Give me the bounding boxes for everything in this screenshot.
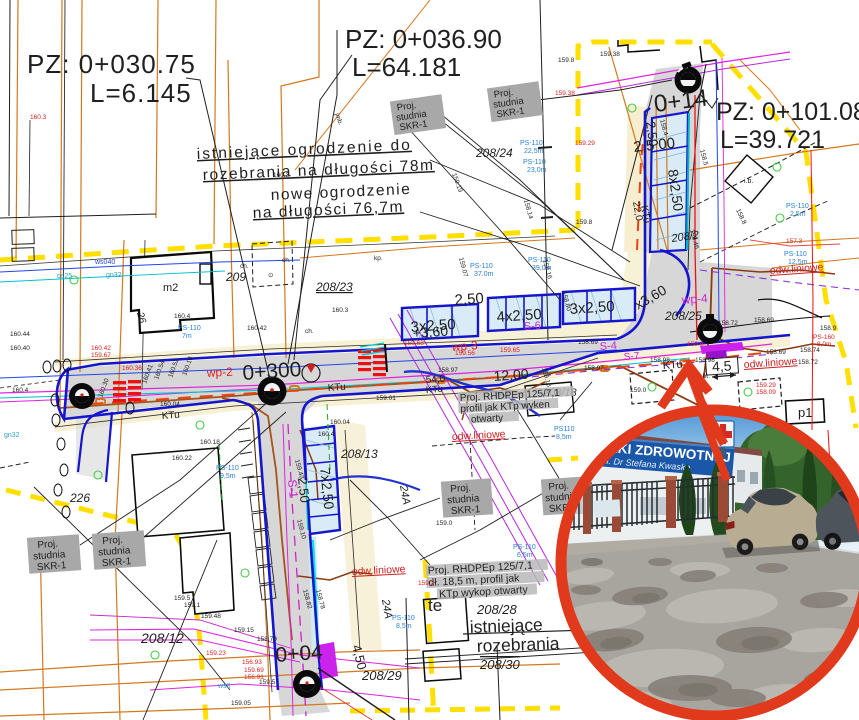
svg-text:ch.: ch. xyxy=(240,263,249,270)
svg-text:158.69: 158.69 xyxy=(578,339,598,346)
svg-text:160.04: 160.04 xyxy=(160,401,180,408)
svg-text:⊙: ⊙ xyxy=(268,272,274,279)
svg-text:PZ: 0+030.75: PZ: 0+030.75 xyxy=(27,49,196,79)
svg-text:158.97: 158.97 xyxy=(584,365,604,372)
svg-text:L=6.145: L=6.145 xyxy=(90,78,192,108)
svg-text:160.44: 160.44 xyxy=(10,331,30,338)
svg-text:KTu: KTu xyxy=(161,410,180,422)
svg-text:158.72: 158.72 xyxy=(718,320,738,327)
svg-text:208/29: 208/29 xyxy=(361,668,402,683)
svg-text:PS-110: PS-110 xyxy=(523,159,546,166)
svg-text:PS-110: PS-110 xyxy=(178,325,201,332)
svg-text:160.40: 160.40 xyxy=(10,345,30,352)
svg-text:159.38: 159.38 xyxy=(600,51,620,58)
svg-text:SKR-1: SKR-1 xyxy=(102,556,133,569)
svg-text:158.98: 158.98 xyxy=(695,357,715,364)
svg-text:gn32: gn32 xyxy=(106,272,122,279)
svg-text:KTu: KTu xyxy=(425,384,443,396)
svg-text:0+300: 0+300 xyxy=(242,358,302,385)
svg-text:6,5m: 6,5m xyxy=(517,552,533,559)
svg-text:12,5m: 12,5m xyxy=(788,259,808,266)
svg-text:37.0m: 37.0m xyxy=(474,271,494,278)
svg-text:159.23: 159.23 xyxy=(206,650,226,657)
svg-text:159.69: 159.69 xyxy=(244,667,264,674)
svg-text:kp.: kp. xyxy=(374,255,383,262)
svg-text:160.18: 160.18 xyxy=(200,439,220,446)
svg-text:158.72: 158.72 xyxy=(798,359,818,366)
svg-text:160.42: 160.42 xyxy=(91,345,111,352)
svg-text:S-7: S-7 xyxy=(623,351,640,363)
svg-text:159.56: 159.56 xyxy=(455,350,475,357)
svg-text:PS-110: PS-110 xyxy=(784,251,807,258)
svg-text:159.1: 159.1 xyxy=(184,602,201,609)
svg-text:159.8: 159.8 xyxy=(576,219,593,226)
svg-text:wp-2: wp-2 xyxy=(205,365,233,380)
svg-text:159.67: 159.67 xyxy=(91,352,111,359)
svg-text:160.4: 160.4 xyxy=(318,431,335,438)
svg-text:2,50: 2,50 xyxy=(454,290,484,309)
svg-text:159.0: 159.0 xyxy=(630,387,647,394)
svg-text:gs25: gs25 xyxy=(57,273,72,280)
svg-text:PZ: 0+036.90: PZ: 0+036.90 xyxy=(345,24,502,54)
svg-text:160.42: 160.42 xyxy=(247,325,267,332)
svg-text:PS-110: PS-110 xyxy=(470,263,493,270)
svg-text:PS-110: PS-110 xyxy=(392,615,415,622)
svg-text:PS-110: PS-110 xyxy=(513,544,536,551)
svg-text:12,00: 12,00 xyxy=(493,366,529,384)
svg-text:159.9: 159.9 xyxy=(687,341,704,348)
svg-text:208/13: 208/13 xyxy=(340,447,378,461)
svg-text:PS-110: PS-110 xyxy=(520,140,543,147)
svg-text:3x2,50: 3x2,50 xyxy=(569,298,615,318)
svg-text:158.69: 158.69 xyxy=(766,349,786,356)
svg-text:otwarty: otwarty xyxy=(471,413,504,426)
svg-text:0+04: 0+04 xyxy=(275,641,324,667)
svg-text:160.3: 160.3 xyxy=(332,307,349,314)
svg-text:158.98: 158.98 xyxy=(650,357,670,364)
svg-text:158.09: 158.09 xyxy=(756,389,776,396)
svg-text:208/23: 208/23 xyxy=(315,280,353,294)
svg-text:8,5m: 8,5m xyxy=(556,434,572,441)
svg-text:159.65: 159.65 xyxy=(500,347,520,354)
svg-text:159.15: 159.15 xyxy=(234,627,254,634)
svg-text:209: 209 xyxy=(225,270,246,284)
svg-text:ch.: ch. xyxy=(282,257,291,264)
svg-text:159.5: 159.5 xyxy=(259,679,276,686)
svg-text:158.79: 158.79 xyxy=(257,636,277,643)
svg-text:i.b.: i.b. xyxy=(744,178,753,185)
svg-text:159.38: 159.38 xyxy=(555,90,575,97)
svg-text:208/24: 208/24 xyxy=(475,146,513,160)
svg-text:160.04: 160.04 xyxy=(330,419,350,426)
svg-text:156.93: 156.93 xyxy=(242,659,262,666)
svg-text:160.22: 160.22 xyxy=(172,455,192,462)
svg-text:23,0m: 23,0m xyxy=(527,167,547,174)
svg-text:PS110: PS110 xyxy=(554,426,575,433)
svg-text:S-1: S-1 xyxy=(285,479,301,499)
svg-text:SKR-1: SKR-1 xyxy=(451,504,482,517)
svg-text:2,5m: 2,5m xyxy=(790,211,806,218)
svg-text:160.4: 160.4 xyxy=(174,313,191,320)
svg-text:L=39.721: L=39.721 xyxy=(720,126,825,154)
svg-text:160.3: 160.3 xyxy=(30,114,47,121)
svg-text:159.5: 159.5 xyxy=(174,595,191,602)
svg-text:ws8: ws8 xyxy=(217,683,231,690)
svg-text:158.97: 158.97 xyxy=(438,367,458,374)
svg-text:S-6: S-6 xyxy=(523,320,541,333)
svg-text:KTu: KTu xyxy=(327,382,346,394)
svg-text:SKR-1: SKR-1 xyxy=(37,560,68,573)
svg-text:160.3: 160.3 xyxy=(273,172,290,179)
svg-text:158.9: 158.9 xyxy=(820,325,837,332)
svg-text:159.2: 159.2 xyxy=(418,580,435,587)
svg-text:157.3: 157.3 xyxy=(786,238,803,245)
svg-text:159.48: 159.48 xyxy=(201,613,221,620)
svg-text:+3,60: +3,60 xyxy=(412,323,449,341)
svg-text:L=64.181: L=64.181 xyxy=(352,52,461,82)
svg-text:gn32: gn32 xyxy=(4,432,20,439)
svg-text:p1: p1 xyxy=(798,405,812,420)
svg-text:ch.: ch. xyxy=(305,328,314,335)
svg-text:159.8: 159.8 xyxy=(558,57,575,64)
svg-text:160.4: 160.4 xyxy=(12,387,29,394)
svg-text:160.36: 160.36 xyxy=(122,365,142,372)
svg-text:159.01: 159.01 xyxy=(376,395,396,402)
svg-text:m2: m2 xyxy=(163,282,178,294)
svg-text:159.29: 159.29 xyxy=(575,140,595,147)
svg-text:PS-160: PS-160 xyxy=(813,334,835,341)
svg-text:159.05: 159.05 xyxy=(231,700,251,707)
svg-text:158.69: 158.69 xyxy=(754,317,774,324)
svg-text:9,5m: 9,5m xyxy=(220,473,236,480)
svg-text:208/25: 208/25 xyxy=(664,309,702,323)
svg-text:wp-4: wp-4 xyxy=(680,291,708,307)
svg-text:ws040: ws040 xyxy=(94,259,115,266)
svg-text:7m: 7m xyxy=(182,333,192,340)
svg-text:226: 226 xyxy=(69,491,90,505)
svg-text:22,5m: 22,5m xyxy=(524,148,544,155)
svg-text:PS-110: PS-110 xyxy=(216,465,239,472)
svg-text:158.74: 158.74 xyxy=(800,347,820,354)
svg-text:S-4: S-4 xyxy=(599,340,617,353)
svg-text:208/12: 208/12 xyxy=(140,630,184,646)
svg-text:rozebrania: rozebrania xyxy=(476,633,560,656)
svg-text:8,5m: 8,5m xyxy=(396,623,412,630)
svg-text:159.29: 159.29 xyxy=(756,382,776,389)
svg-text:PZ: 0+101.08: PZ: 0+101.08 xyxy=(716,98,859,126)
svg-text:208/30: 208/30 xyxy=(479,657,521,672)
svg-text:159.68: 159.68 xyxy=(404,340,424,347)
svg-text:159.0: 159.0 xyxy=(436,520,453,527)
svg-text:PS-110: PS-110 xyxy=(786,203,809,210)
